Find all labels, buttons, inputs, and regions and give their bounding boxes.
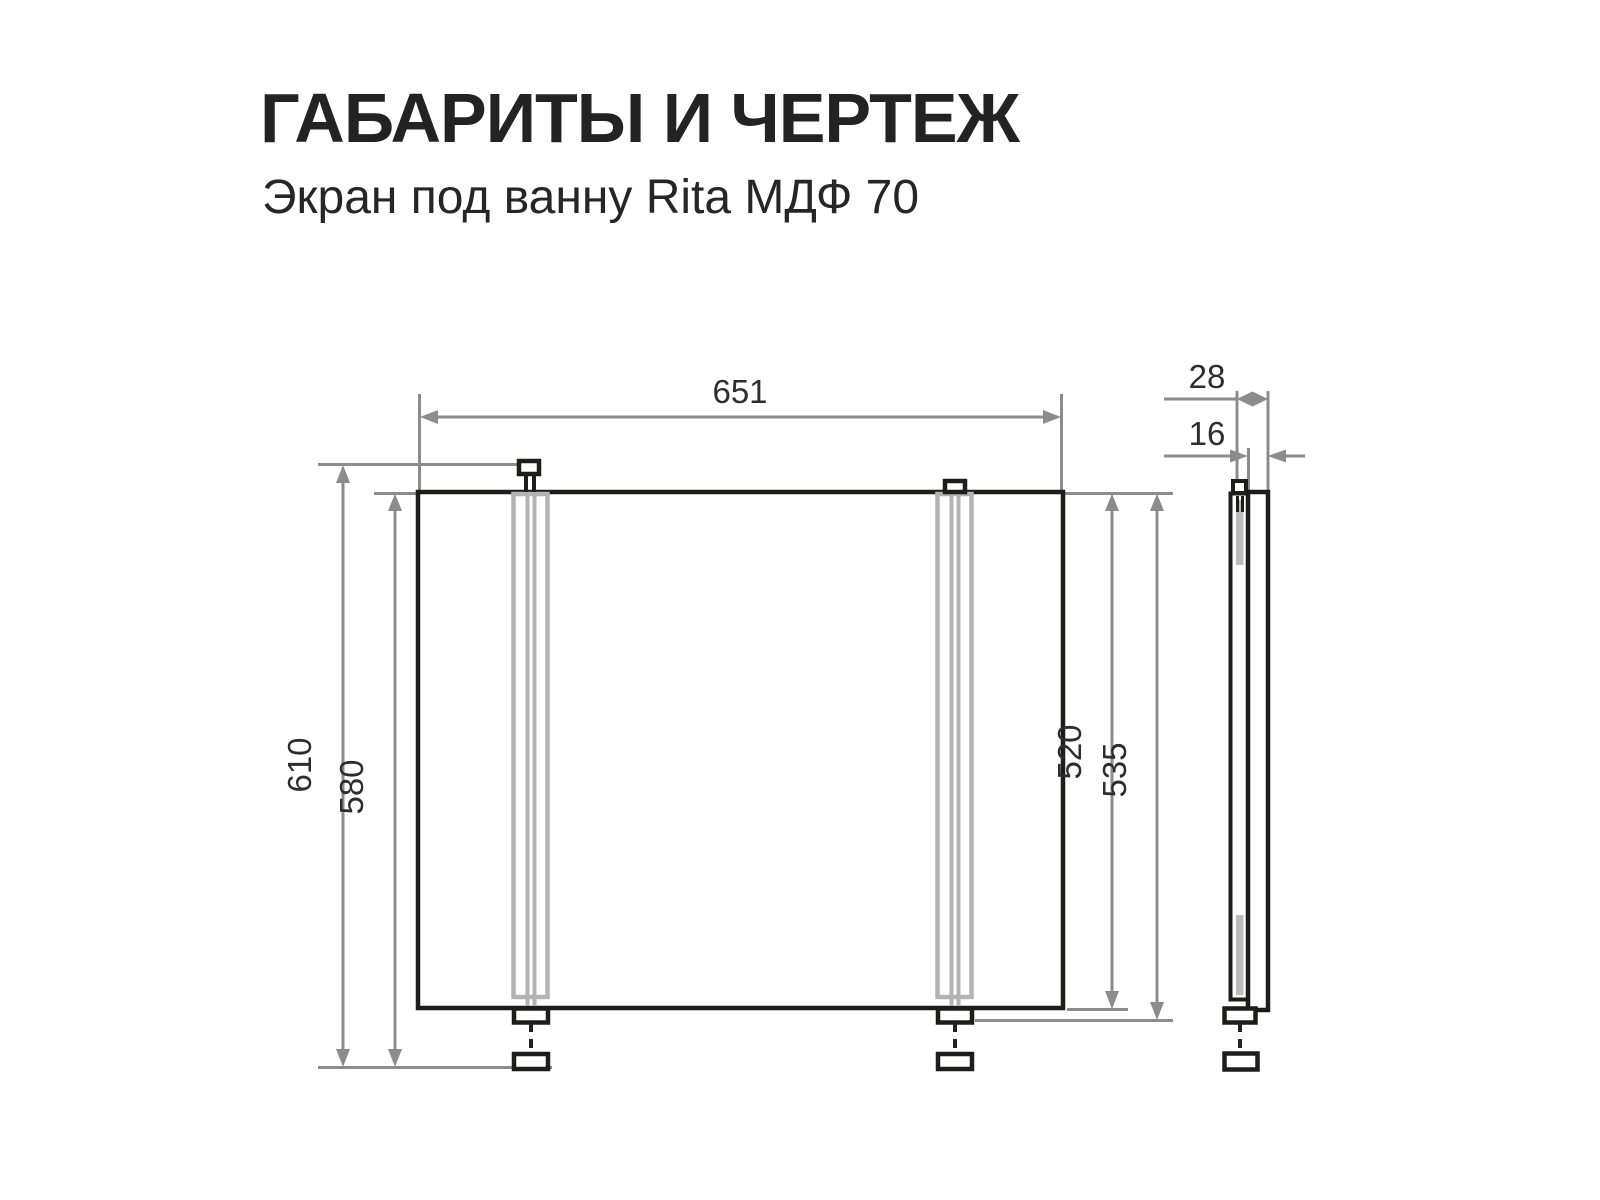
front-view xyxy=(418,461,1063,1069)
arrowhead-up xyxy=(1150,494,1164,512)
right-leg xyxy=(938,481,973,1069)
foot-bracket xyxy=(938,1009,972,1023)
foot-bracket xyxy=(514,1009,548,1023)
arrowhead-up xyxy=(388,494,402,512)
arrowhead-left xyxy=(420,410,438,424)
dim-label-panel-thickness: 16 xyxy=(1189,415,1226,452)
panel-profile-outline xyxy=(1248,492,1268,1010)
page: { "header": { "title": "ГАБАРИТЫ И ЧЕРТЕ… xyxy=(0,0,1600,1200)
dim-height-580 xyxy=(374,494,420,1068)
dim-label-panel-height: 520 xyxy=(1051,724,1088,779)
foot-plate xyxy=(938,1054,972,1069)
dim-label-overall-depth: 28 xyxy=(1189,358,1226,395)
foot-plate xyxy=(514,1054,548,1069)
leg-rail xyxy=(938,494,972,997)
foot-plate xyxy=(1225,1054,1258,1070)
arrowhead-up xyxy=(1105,494,1119,512)
arrowhead-down xyxy=(1105,991,1119,1009)
screw-head xyxy=(945,481,965,492)
arrowhead-diamond xyxy=(1237,392,1268,407)
arrowhead-right xyxy=(1043,410,1061,424)
left-leg xyxy=(514,461,549,1069)
drawing-canvas: 651 610 580 520 535 28 16 xyxy=(0,0,1600,1200)
dim-label-width: 651 xyxy=(712,373,767,410)
foot-bracket xyxy=(1225,1009,1256,1023)
arrowhead-up xyxy=(336,465,350,483)
dim-label-overall-height: 610 xyxy=(281,737,318,792)
leg-rail-lower xyxy=(1236,915,1244,995)
dim-label-panel-with-bracket: 535 xyxy=(1096,742,1133,797)
screw-head xyxy=(519,461,539,474)
arrowhead-left xyxy=(1268,450,1286,463)
dim-label-height-to-foot: 580 xyxy=(333,759,370,814)
arrowhead-right xyxy=(1230,450,1248,463)
arrowhead-down xyxy=(1150,1002,1164,1020)
arrowhead-down xyxy=(388,1049,402,1067)
side-view xyxy=(1225,481,1269,1070)
arrowhead-down xyxy=(336,1049,350,1067)
screw-cap xyxy=(1233,481,1246,493)
leg-rail xyxy=(514,494,548,997)
